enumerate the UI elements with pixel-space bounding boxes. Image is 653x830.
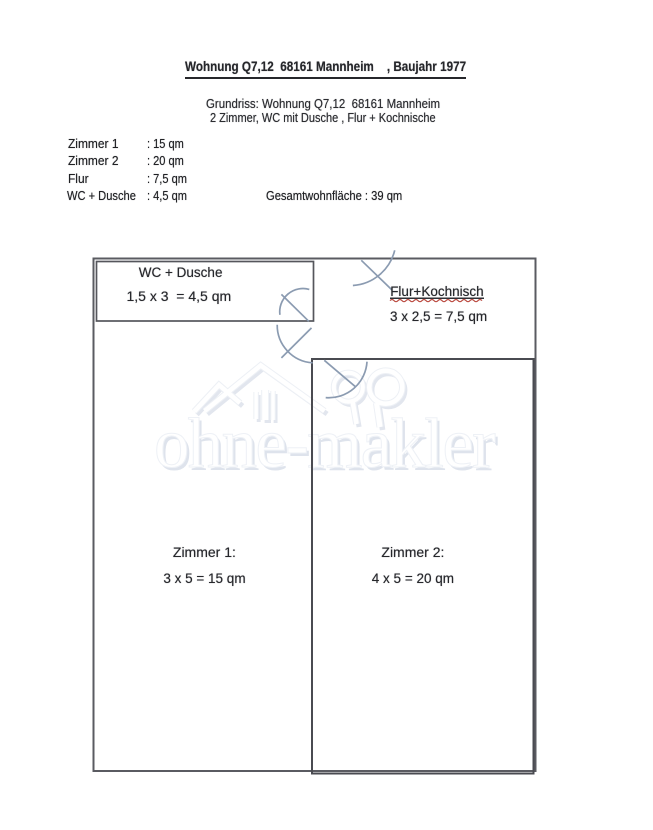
svg-text:ohne-makler: ohne-makler (154, 405, 496, 483)
